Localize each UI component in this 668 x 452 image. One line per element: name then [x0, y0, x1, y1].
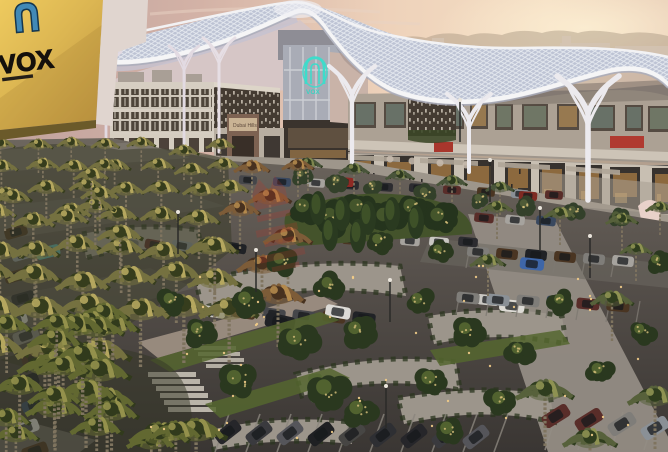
svg-text:VOX: VOX: [306, 89, 320, 96]
svg-text:Dubai Hills: Dubai Hills: [233, 123, 257, 129]
